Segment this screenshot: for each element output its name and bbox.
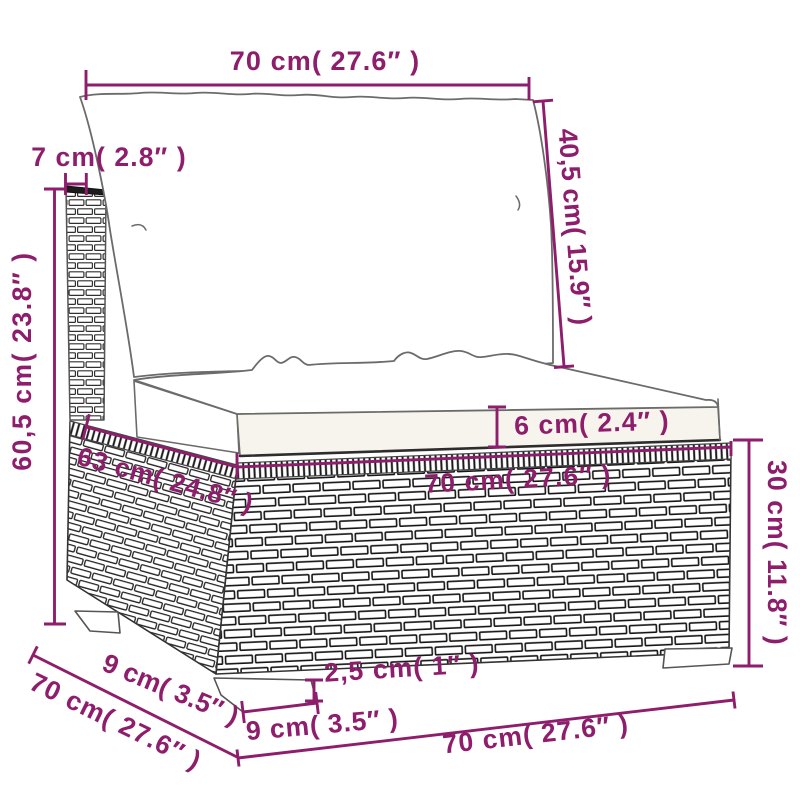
svg-text:30 cm( 11.8″ ): 30 cm( 11.8″ ) xyxy=(762,460,792,646)
svg-text:70 cm( 27.6″ ): 70 cm( 27.6″ ) xyxy=(441,709,630,760)
svg-text:6 cm( 2.4″ ): 6 cm( 2.4″ ) xyxy=(514,405,670,440)
svg-text:60,5 cm( 23.8″ ): 60,5 cm( 23.8″ ) xyxy=(7,251,37,471)
svg-text:7 cm( 2.8″ ): 7 cm( 2.8″ ) xyxy=(31,142,187,172)
svg-text:70 cm( 27.6″ ): 70 cm( 27.6″ ) xyxy=(230,46,420,76)
